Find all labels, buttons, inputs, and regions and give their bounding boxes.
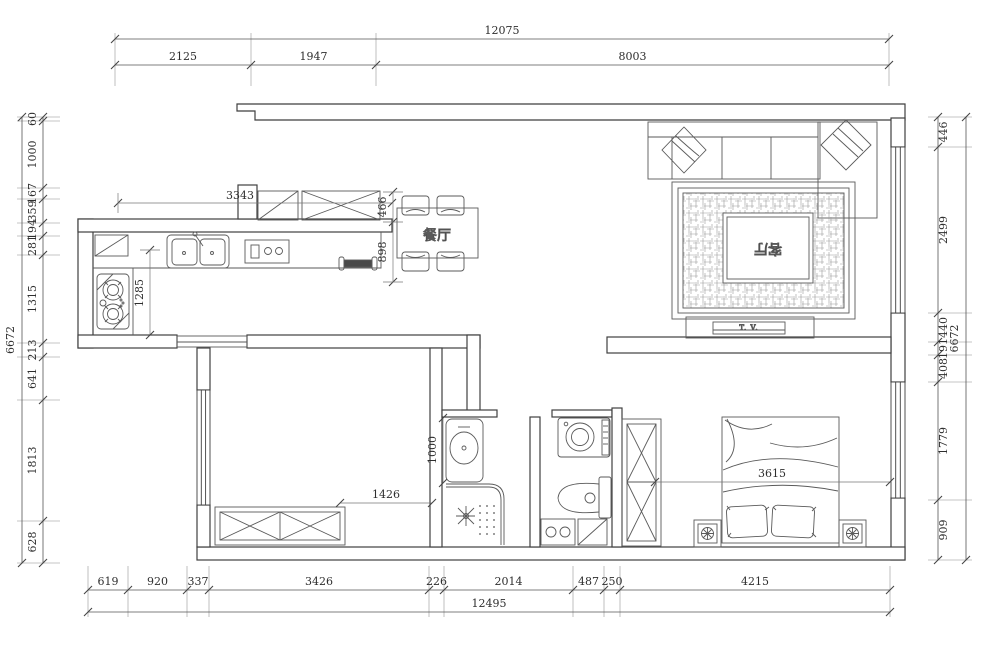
wall-kitchen-bottom-left bbox=[78, 335, 177, 348]
dim-label: 1813 bbox=[26, 447, 39, 475]
dim-label: 3615 bbox=[758, 467, 786, 480]
kitchen-threshold bbox=[177, 336, 247, 347]
dim-label: 1000 bbox=[426, 436, 439, 464]
dim-label: 641 bbox=[26, 368, 39, 389]
dining-chair bbox=[402, 252, 429, 271]
wall-kitchen-left bbox=[78, 219, 93, 348]
dim-label: 226 bbox=[426, 575, 447, 588]
dim-label: 2499 bbox=[937, 216, 950, 244]
tv-label: T. V. bbox=[739, 324, 758, 332]
wall-right-middle bbox=[891, 313, 905, 382]
wall-left-bedroom-lower bbox=[197, 505, 210, 547]
dim-label: 2014 bbox=[495, 575, 523, 588]
double-bed bbox=[722, 417, 839, 543]
wall-kitchen-top bbox=[78, 219, 392, 232]
dim-label: 466 bbox=[376, 197, 389, 218]
dim-kitchen-depth: 1285 bbox=[133, 246, 160, 339]
dim-label: 619 bbox=[98, 575, 119, 588]
shower-spray-dots bbox=[479, 505, 495, 535]
cooktop-control-panel bbox=[245, 240, 289, 263]
bedroom-left bbox=[215, 507, 345, 545]
kitchen-counter-edge bbox=[93, 232, 381, 268]
nightstand bbox=[839, 520, 866, 547]
toilet bbox=[558, 477, 611, 518]
wall-laundry-right bbox=[612, 408, 622, 547]
wall-bath-divider bbox=[530, 417, 540, 547]
bed-pillow bbox=[771, 505, 816, 538]
dim-bedroom2-width: 3615 bbox=[651, 467, 894, 486]
dim-label: 1947 bbox=[300, 50, 328, 63]
dim-label: 281 bbox=[26, 235, 39, 256]
dim-label: 213 bbox=[26, 340, 39, 361]
dining-chair bbox=[437, 196, 464, 215]
living-room-label: 客厅 bbox=[754, 240, 782, 257]
stove-knob bbox=[100, 300, 106, 306]
dim-label: 8003 bbox=[619, 50, 647, 63]
nightstand bbox=[694, 520, 721, 547]
dim-label: 1000 bbox=[26, 141, 39, 169]
floor-plan-canvas: 餐厅 客厅 bbox=[0, 0, 992, 650]
window-bedroom1-left bbox=[197, 390, 210, 505]
dining-chair bbox=[437, 252, 464, 271]
dim-label: 1779 bbox=[937, 427, 950, 455]
dim-label: 1285 bbox=[133, 279, 146, 307]
kitchen bbox=[93, 191, 381, 347]
wall-living-bottom bbox=[607, 337, 891, 353]
wall-left-bedroom-upper bbox=[197, 348, 210, 390]
dim-label: 1315 bbox=[26, 285, 39, 313]
dimension-chain-left: 601000167359194281131521364118136286672 bbox=[4, 112, 60, 567]
living-room: 客厅 T. V. bbox=[648, 120, 877, 338]
overall-dim-label: 6672 bbox=[4, 326, 17, 354]
dim-label: 3343 bbox=[226, 189, 254, 202]
bath-cabinet bbox=[541, 519, 575, 545]
dim-label: 408 bbox=[937, 358, 950, 379]
dim-label: 898 bbox=[376, 242, 389, 263]
overall-dim-label: 12495 bbox=[472, 597, 507, 610]
dimension-chain-bottom: 61992033734262262014487250421512495 bbox=[84, 566, 894, 617]
corner-cabinet bbox=[95, 235, 128, 256]
shower-area bbox=[446, 484, 504, 545]
overall-dim-label: 12075 bbox=[485, 24, 520, 37]
gas-stove bbox=[97, 274, 129, 329]
laundry-wc bbox=[541, 418, 611, 545]
dim-label: 1426 bbox=[372, 488, 400, 501]
wall-right-upper bbox=[891, 118, 905, 147]
dim-bedroom1-width: 1426 bbox=[336, 488, 436, 507]
sofa-pillow bbox=[821, 120, 871, 170]
wall-top bbox=[237, 104, 905, 120]
dining-room-label: 餐厅 bbox=[423, 228, 451, 244]
double-sink bbox=[167, 232, 229, 268]
dim-label: 3426 bbox=[305, 575, 333, 588]
wall-kitchen-dining-bottom bbox=[247, 335, 480, 348]
wall-bath-top-left bbox=[442, 410, 497, 417]
dim-label: 250 bbox=[602, 575, 623, 588]
window-bedroom2-right bbox=[891, 382, 905, 498]
dim-label: 487 bbox=[578, 575, 599, 588]
dim-label: 359 bbox=[26, 201, 39, 222]
hall-cabinet-large bbox=[302, 191, 380, 220]
dim-label: 4215 bbox=[741, 575, 769, 588]
sofa-pillow bbox=[662, 127, 706, 173]
dimension-chain-top: 21251947800312075 bbox=[111, 24, 893, 86]
dim-label: 920 bbox=[147, 575, 168, 588]
bath-cabinet-diagonal bbox=[578, 519, 607, 545]
dim-label: 337 bbox=[188, 575, 209, 588]
dining-chair bbox=[402, 196, 429, 215]
dim-label: 60 bbox=[26, 112, 39, 126]
dim-label: 628 bbox=[26, 532, 39, 553]
wall-bottom bbox=[197, 547, 905, 560]
window-living-right bbox=[891, 147, 905, 313]
wall-bath-top-right bbox=[552, 410, 612, 417]
wall-stub-corridor bbox=[467, 335, 480, 413]
dimension-chain-right: 446249944019140817799096672 bbox=[928, 113, 972, 564]
bed-pillow bbox=[726, 505, 769, 538]
dim-label: 446 bbox=[937, 122, 950, 143]
vanity-sink bbox=[446, 419, 483, 482]
dim-label: 909 bbox=[937, 520, 950, 541]
dining-room: 餐厅 bbox=[397, 196, 478, 271]
wardrobe bbox=[215, 507, 345, 545]
washing-machine bbox=[558, 418, 610, 457]
hall-cabinet-small bbox=[258, 191, 298, 220]
dim-label: 2125 bbox=[169, 50, 197, 63]
shower-head-icon bbox=[456, 506, 475, 526]
bathroom bbox=[446, 419, 504, 545]
overall-dim-label: 6672 bbox=[948, 325, 961, 353]
